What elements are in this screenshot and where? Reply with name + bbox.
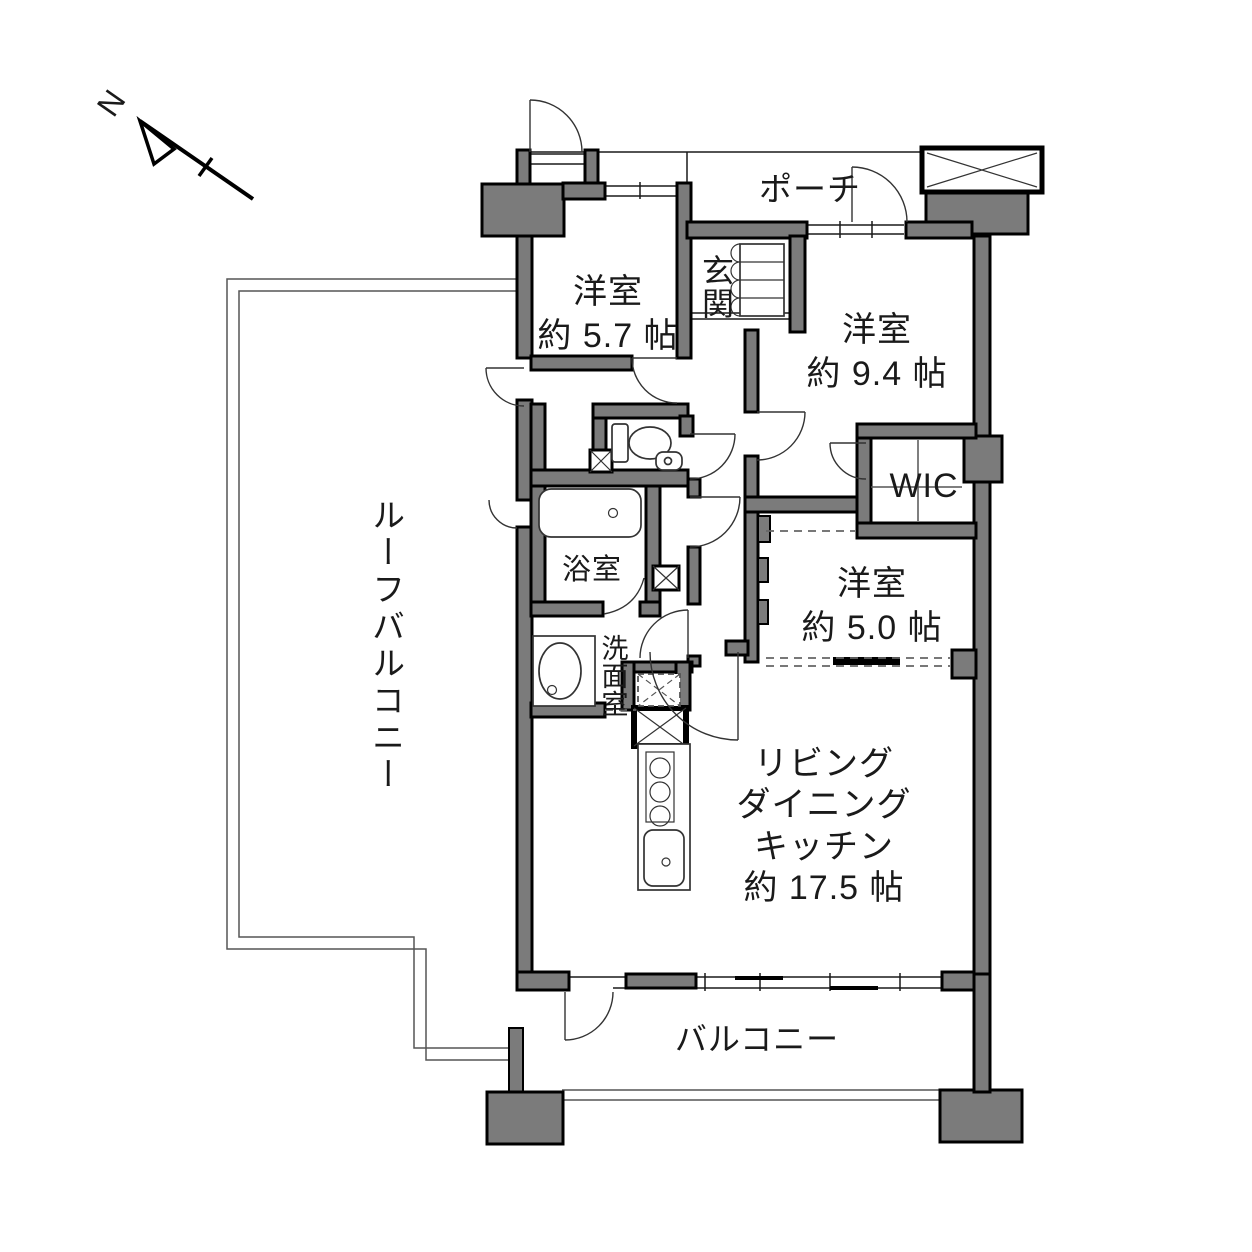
balcony-door <box>565 992 613 1040</box>
entrance-label: 玄関 <box>700 254 732 320</box>
pillar-bottom-right <box>940 1090 1022 1142</box>
floor-plan-drawing <box>0 0 1252 1252</box>
bedroom-a-label: 洋室 約 5.7 帖 <box>537 270 678 358</box>
wic-label: WIC <box>889 464 958 508</box>
toilet-door <box>690 434 735 479</box>
floor-plan: N ポーチ 玄関 洋室 約 5.7 帖 洋室 約 9.4 帖 WIC 洋室 約 … <box>0 0 1252 1252</box>
shoe-cabinet-fixture <box>731 244 784 316</box>
bedroom-c-label: 洋室 約 5.0 帖 <box>801 562 942 650</box>
kitchen-fixture <box>638 744 690 890</box>
east-wall <box>974 236 990 974</box>
hall-door <box>690 497 740 547</box>
bedroom-b-door <box>757 412 805 460</box>
bathroom-label: 浴室 <box>562 552 622 590</box>
ldk-label: リビング ダイニング キッチン 約 17.5 帖 <box>737 744 912 910</box>
washbasin-fixture <box>533 636 595 706</box>
bath-window-swing <box>489 500 517 528</box>
bedroom-a-door <box>632 358 677 403</box>
pillar-top-left <box>482 184 564 236</box>
toilet-north-wall <box>593 404 688 418</box>
balcony-outline <box>562 1090 940 1100</box>
toilet-fixture <box>612 424 682 470</box>
bay-door <box>530 100 582 152</box>
balcony-label: バルコニー <box>675 1019 839 1061</box>
bathtub-fixture <box>539 489 641 537</box>
shaft-hatch-box <box>922 148 1042 192</box>
roof-balcony-label: ルーフバルコニー <box>370 498 403 794</box>
pillar-bottom-left <box>487 1092 563 1144</box>
compass-icon <box>140 121 253 199</box>
washroom-label: 洗面室 <box>599 634 626 718</box>
porch-label: ポーチ <box>759 169 861 212</box>
bedroom-b-label: 洋室 約 9.4 帖 <box>806 308 947 396</box>
wic-north-wall <box>857 424 976 438</box>
